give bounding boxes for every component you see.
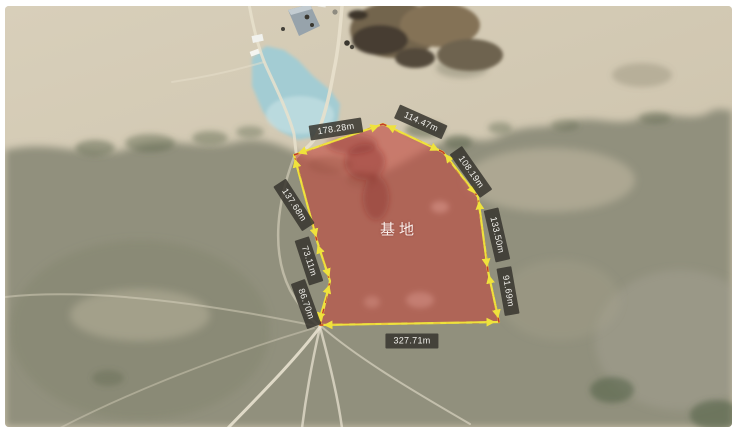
satellite-map[interactable] [5,6,732,427]
screenshot-root: { "map": { "kind": "satellite", "area": … [0,0,742,432]
